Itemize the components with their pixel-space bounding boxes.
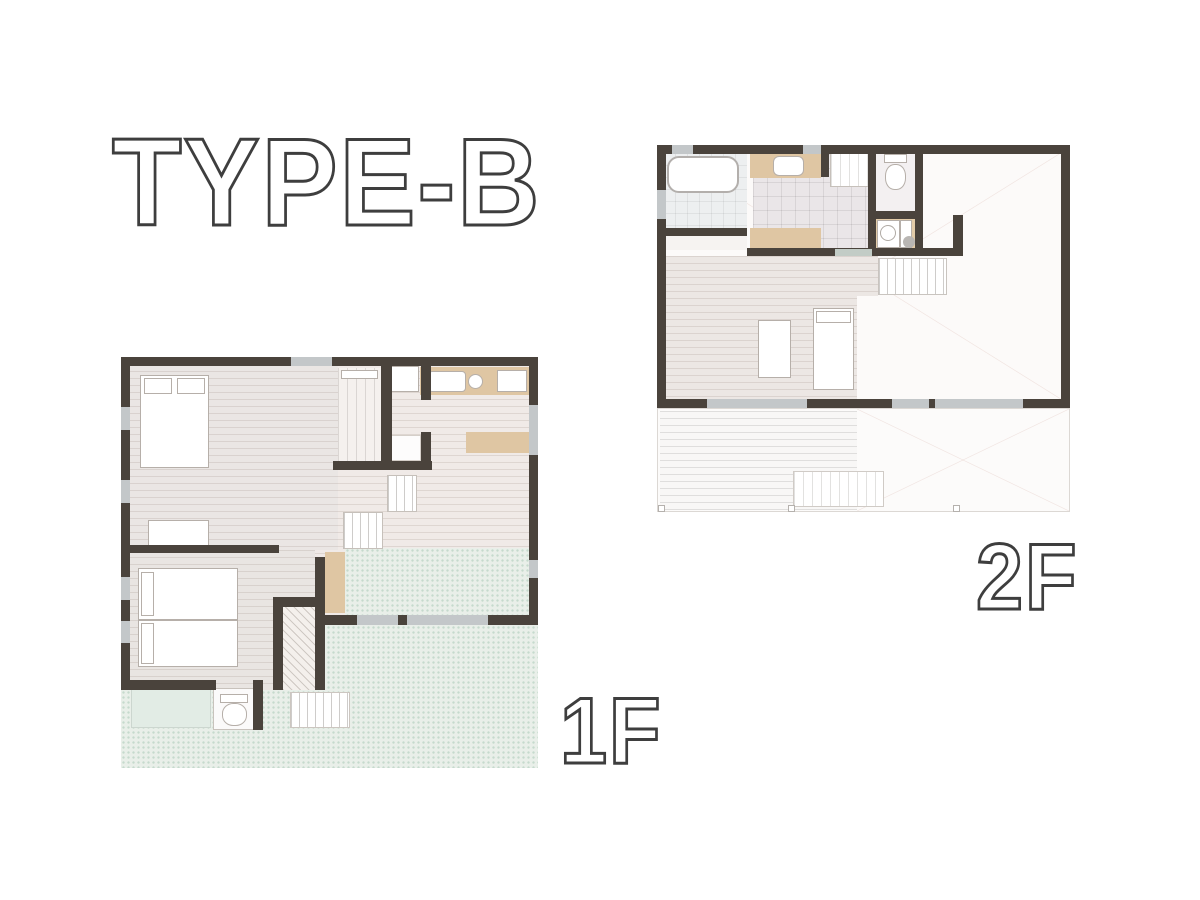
refrigerator: [497, 370, 527, 392]
wall: [333, 461, 432, 470]
linen-shelf: [830, 153, 869, 187]
storage-niche: [391, 435, 421, 461]
wall: [529, 357, 538, 625]
wall: [1061, 145, 1070, 408]
bathroom-hall: [663, 236, 747, 250]
pillow: [141, 572, 154, 616]
wall: [421, 364, 431, 400]
stairs-upper-flight: [387, 475, 417, 512]
window: [121, 480, 130, 503]
wall: [821, 145, 829, 177]
pillow: [144, 378, 172, 394]
wall: [421, 432, 431, 470]
window: [672, 145, 693, 154]
sliding-door: [835, 249, 872, 256]
wall: [905, 248, 963, 256]
stove-burner: [468, 374, 483, 389]
sliding-door: [707, 399, 807, 408]
window: [291, 357, 332, 366]
window: [529, 405, 538, 455]
bedroom-2f-floor-ext: [857, 256, 878, 296]
dining-table: [466, 432, 530, 453]
toilet-bowl-1f: [222, 703, 247, 726]
wall: [657, 145, 1070, 154]
wall: [253, 680, 263, 730]
window: [121, 621, 130, 643]
pillow: [816, 311, 851, 323]
wall: [273, 607, 283, 690]
floorplan-sheet: TYPE-B: [0, 0, 1200, 900]
stairs-2f: [878, 258, 947, 295]
window: [803, 145, 823, 154]
toilet-bowl-2f: [885, 164, 906, 190]
sliding-door: [407, 615, 488, 625]
floor-label-2f: 2F: [976, 530, 1078, 624]
roof-hatch: [793, 471, 884, 507]
sliding-door: [935, 399, 1023, 408]
washroom-cabinet: [750, 228, 821, 248]
plan-1f: [121, 357, 538, 769]
sliding-door: [357, 615, 398, 625]
roof-below: [857, 409, 1069, 511]
closet-shelf-board: [341, 370, 378, 379]
window: [529, 560, 538, 578]
window: [657, 190, 666, 219]
shoe-cabinet: [325, 552, 345, 613]
floor-label-1f: 1F: [560, 684, 662, 778]
utility-sink: [903, 236, 915, 248]
pillow: [141, 623, 154, 664]
vanity-sink: [773, 156, 804, 176]
wall: [381, 364, 392, 470]
entrance-cabinet: [390, 366, 419, 392]
desk: [758, 320, 791, 378]
wall: [273, 597, 320, 607]
wall: [315, 557, 325, 690]
window: [121, 407, 130, 430]
wall: [121, 680, 216, 690]
toilet-tank-1f: [220, 694, 248, 703]
wall: [657, 228, 747, 236]
toilet-tank-2f: [884, 154, 907, 163]
kitchen-sink: [428, 371, 466, 392]
post-marker: [788, 505, 795, 512]
genkan-step: [290, 692, 350, 728]
wall: [128, 545, 279, 553]
doma-entrance-floor: [345, 548, 531, 625]
post-marker: [658, 505, 665, 512]
plan-2f: [657, 145, 1070, 525]
wall: [868, 148, 876, 248]
closet-shelves: [338, 368, 381, 463]
wall: [915, 148, 923, 256]
post-marker: [953, 505, 960, 512]
stairs-lower-flight: [343, 512, 383, 549]
pillow: [177, 378, 205, 394]
bathtub: [667, 156, 739, 193]
storage-room-floor: [131, 688, 211, 728]
plan-title: TYPE-B: [112, 121, 541, 245]
window: [121, 577, 130, 600]
washer-drum: [880, 225, 896, 241]
sliding-door: [892, 399, 929, 408]
wall: [657, 145, 666, 408]
